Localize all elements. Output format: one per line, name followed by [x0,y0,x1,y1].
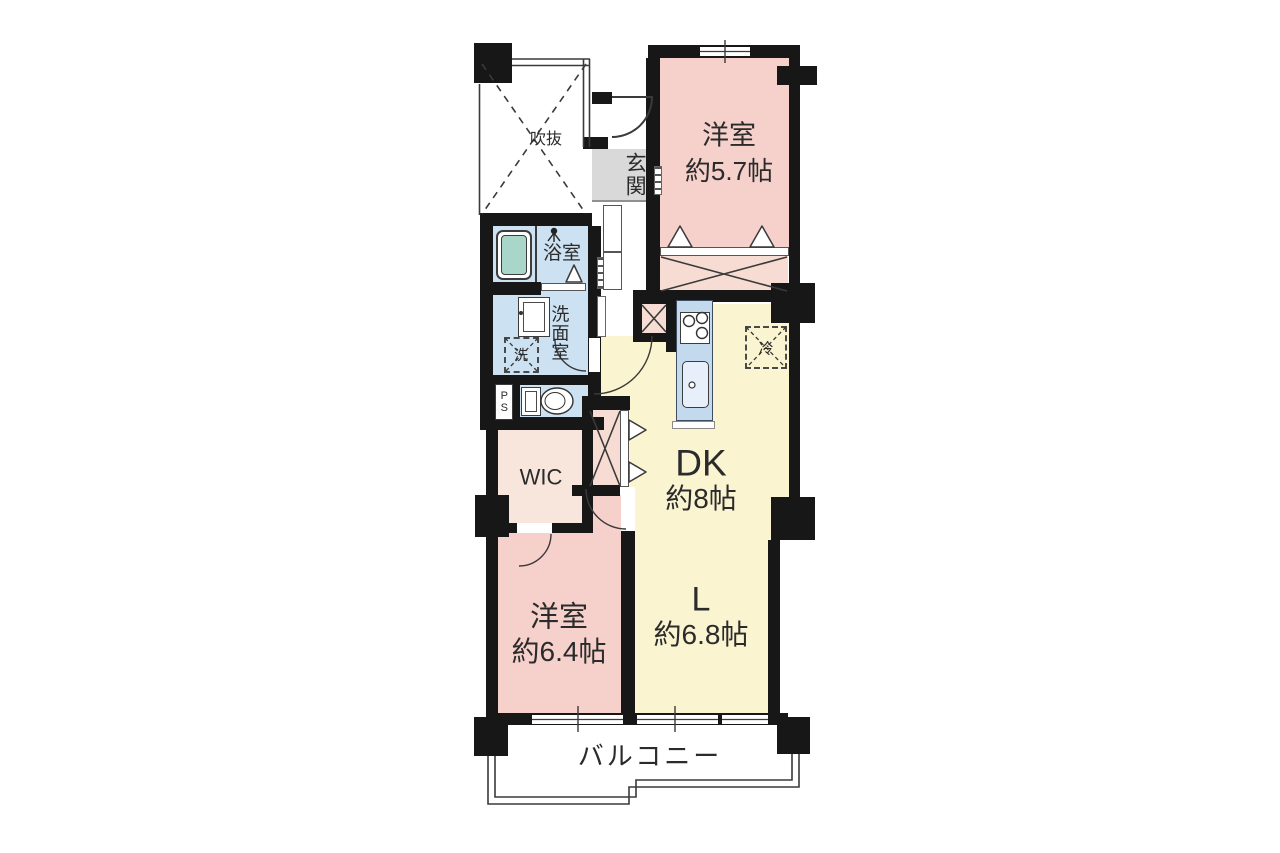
wall-6-4-left [486,527,498,717]
washbasin [518,297,550,337]
room-size-dk: 約8帖 [665,483,737,515]
room-label-western-5-7: 洋室 [702,120,756,151]
room-label-washroom: 洗面室 [549,305,570,362]
wall-bath-washroom [488,282,541,295]
wall-vert-mid [582,396,593,533]
shoe-cabinet [603,205,622,252]
window-bottom-3 [722,715,768,724]
washbasin-inner [523,302,545,332]
kitchen-sink [682,361,709,408]
bathtub-inner [501,235,527,275]
fixture-label-ps: PS [498,390,511,414]
wall-corner-block [474,43,512,83]
room-label-void: 吹抜 [530,131,562,149]
fixture-label-refrigerator: 冷 [758,340,773,357]
kitchen-step [672,421,715,429]
vestibule-door-opening [621,487,635,531]
room-label-western-6-4: 洋室 [530,601,588,634]
fixture-label-washing-machine: 洗 [514,347,528,363]
wall-dk-right [789,302,800,497]
toilet-tank [521,387,541,416]
room-label-living: L [692,580,711,619]
shoe-cabinet [603,252,622,290]
western-5-7-closet [660,256,788,292]
western-5-7-door [654,166,662,195]
kitchen-side-closet [642,304,666,333]
wall-corner-block [777,66,817,85]
western-5-7-floor [660,58,789,247]
stove [680,312,710,344]
toilet-tank-inner [525,391,537,412]
washroom-door-opening [589,338,600,372]
closet-5-7-track [660,247,789,256]
bathtub [496,230,532,280]
wall-corner-block [777,717,810,754]
window-top [700,47,750,56]
room-size-western-6-4: 約6.4帖 [512,636,607,668]
window-bottom-2 [637,715,718,724]
wic-door-opening [517,523,552,533]
wall-entry-stub [583,137,608,149]
room-label-wic: WIC [520,464,563,489]
wall-kcloset-bottom [633,333,668,342]
wall-kcloset-top [633,290,678,304]
hall-closet-track [620,410,629,487]
room-label-entrance: 玄関 [622,152,646,198]
floor-plan: 洋室 約5.7帖 DK 約8帖 L 約6.8帖 洋室 約6.4帖 WIC 玄関 … [0,0,1280,853]
wall-bath-top [480,213,592,226]
floor-fills [0,0,1280,853]
room-label-dk: DK [675,443,726,486]
wall-vestibule-top [572,485,620,496]
western-6-4-vestibule-floor [592,495,621,533]
wall-corner-block [771,497,815,540]
room-label-balcony: バルコニー [578,742,722,772]
hall-door-leaf [597,296,606,337]
wall-entry-stub [592,92,612,104]
window-bottom-1 [532,715,623,724]
room-size-western-5-7: 約5.7帖 [685,157,773,187]
bath-sliding-door [541,283,586,291]
room-size-living: 約6.8帖 [654,619,749,651]
wall-living-right [768,540,780,715]
room-label-bathroom: 浴室 [543,243,581,265]
